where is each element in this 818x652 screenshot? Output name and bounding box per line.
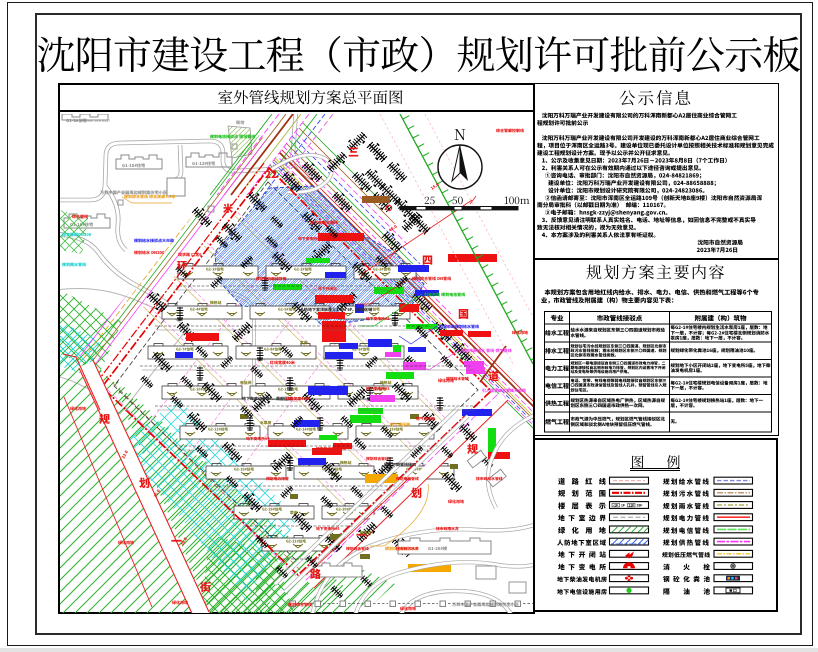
svg-text:燃气调压箱: 燃气调压箱 [390,422,410,428]
svg-text:规划电信管线: 规划电信管线 [396,476,419,482]
svg-text:街坊: 街坊 [236,120,245,126]
svg-text:规划市政排水 管线-燃气管线: 规划市政排水 管线-燃气管线 [461,348,512,354]
svg-text:综合管线DN300: 综合管线DN300 [62,232,92,238]
svg-text:路: 路 [310,566,321,582]
svg-text:G2-4#住宅: G2-4#住宅 [190,307,208,313]
svg-text:绿化用地: 绿化用地 [118,540,134,546]
svg-text:国: 国 [458,306,469,322]
svg-text:人防地下室顶板覆土1.5m 6F、局部区域: 人防地下室顶板覆土1.5m 6F、局部区域 [300,307,372,313]
svg-text:地下变电所#2: 地下变电所#2 [366,316,390,322]
svg-text:G2-2#住宅: G2-2#住宅 [294,267,312,273]
svg-text:街: 街 [200,579,211,595]
svg-text:G1-12#住宅: G1-12#住宅 [192,161,216,167]
svg-text:G2-3#住宅: G2-3#住宅 [373,267,391,273]
svg-text:水泵房: 水泵房 [260,420,272,426]
svg-text:红线宽度40米: 红线宽度40米 [270,360,295,366]
svg-text:地下柴油发电机房: 地下柴油发电机房 [557,575,607,584]
svg-text:0: 0 [395,192,401,207]
svg-text:规划低压燃气管线: 规划低压燃气管线 [662,550,710,559]
svg-text:泵房: 泵房 [290,510,298,516]
svg-text:25: 25 [424,192,436,207]
svg-text:四: 四 [422,252,433,268]
svg-text:规: 规 [99,411,110,427]
svg-text:引自市政 规划电信管线: 引自市政 规划电信管线 [424,292,465,298]
svg-text:N: N [454,124,466,145]
svg-text:18F: 18F [637,504,643,508]
svg-text:11F: 11F [629,504,635,508]
svg-text:G2-1#住宅: G2-1#住宅 [206,267,224,273]
svg-text:G1-10#住宅: G1-10#住宅 [122,163,146,169]
svg-text:规划电力管线: 规划电力管线 [663,513,709,523]
svg-text:规划雨水管线: 规划雨水管线 [663,500,709,510]
svg-text:G2-19#住宅: G2-19#住宅 [262,507,282,513]
svg-text:引自市政规划给水管线: 引自市政规划给水管线 [439,324,479,330]
svg-text:规划综合管线 综合走廊7.5米: 规划综合管线 综合走廊7.5米 [124,194,175,200]
svg-text:22: 22 [265,166,277,181]
svg-text:现状路 口宽6: 现状路 口宽6 [178,252,202,258]
svg-text:绿 化 用 地: 绿 化 用 地 [558,526,607,536]
svg-text:三: 三 [348,144,359,160]
svg-text:规划综合管线: 规划综合管线 [346,546,369,552]
svg-text:换热站: 换热站 [210,300,222,306]
svg-text:G2-8#住宅: G2-8#住宅 [264,347,282,353]
svg-text:现状一期管线接口: 现状一期管线接口 [384,462,416,468]
svg-text:万科中国产业园周边规划路住宅小区: 万科中国产业园周边规划路住宅小区 [452,602,520,608]
svg-text:地下电信设施用房: 地下电信设施用房 [557,587,607,596]
svg-text:隔 油 池: 隔 油 池 [663,586,710,596]
svg-text:接市政雨水井: 接市政雨水井 [436,526,459,532]
svg-text:G1-1#住宅: G1-1#住宅 [66,118,88,124]
svg-text:绿化用地: 绿化用地 [172,600,188,606]
svg-text:换热站: 换热站 [360,530,372,536]
svg-text:划: 划 [139,475,150,491]
svg-text:地下变电所#4: 地下变电所#4 [246,436,270,442]
svg-text:G2-5#住宅: G2-5#住宅 [278,307,296,313]
svg-text:绿化用地: 绿化用地 [400,606,416,612]
svg-text:G2-11#住宅: G2-11#住宅 [278,387,298,393]
svg-text:规划综合管线 DN管线: 规划综合管线 DN管线 [412,276,451,282]
svg-text:楼 层 表 示: 楼 层 表 示 [558,501,606,511]
svg-text:规划电力管线排管: 规划电力管线排管 [256,276,287,282]
svg-text:换热站: 换热站 [380,380,392,386]
svg-text:规划综合管线: 规划综合管线 [366,456,389,462]
svg-text:环: 环 [177,257,187,272]
svg-text:G2-7#住宅: G2-7#住宅 [176,347,194,353]
svg-text:地下柴油发电机房: 地下柴油发电机房 [316,446,347,452]
svg-text:道: 道 [488,368,499,384]
svg-text:换热站: 换热站 [340,460,352,466]
svg-text:规划电力排管: 规划电力排管 [266,476,289,482]
svg-text:地 下 开 闭 站: 地 下 开 闭 站 [558,549,606,559]
svg-text:地下变电所#5: 地下变电所#5 [316,526,340,532]
svg-text:绿化用地: 绿化用地 [512,330,528,336]
svg-text:综合管廊控制线: 综合管廊控制线 [496,128,524,134]
svg-text:绿化用地: 绿化用地 [448,499,464,505]
svg-text:电信间: 电信间 [240,380,252,386]
svg-text:规划雨水管线: 规划雨水管线 [62,262,86,268]
svg-text:25.0: 25.0 [152,488,162,499]
svg-text:G2-21#住宅: G2-21#住宅 [286,539,306,545]
svg-text:燃气调压箱: 燃气调压箱 [416,416,435,422]
svg-text:G2-16#住宅: G2-16#住宅 [234,467,254,473]
svg-text:道 路 红 线: 道 路 红 线 [558,477,607,487]
svg-text:地 下 变 电 所: 地 下 变 电 所 [558,561,606,571]
svg-text:规划给水管线: 规划给水管线 [663,476,709,486]
svg-text:G2-13#住宅: G2-13#住宅 [208,427,228,433]
svg-text:规划综合管线: 规划综合管线 [288,602,312,608]
svg-text:地下变电所#3: 地下变电所#3 [366,386,390,392]
svg-text:地下车库边界 6F、局部区域: 地下车库边界 6F、局部区域 [242,396,292,402]
svg-text:地下变电所#1: 地下变电所#1 [298,236,322,242]
svg-text:G2-14#住宅: G2-14#住宅 [296,427,316,433]
svg-text:消 火 栓: 消 火 栓 [663,561,710,571]
svg-text:钢 砼 化 粪 池: 钢 砼 化 粪 池 [663,574,710,584]
svg-text:引入现状综合管线大市政: 引入现状综合管线大市政 [482,388,526,394]
svg-text:规划给水管线: 规划给水管线 [446,376,469,382]
svg-text:规: 规 [467,441,478,457]
svg-text:绿化用地: 绿化用地 [70,406,86,412]
svg-text:地下车库范围线: 地下车库范围线 [310,220,338,226]
svg-text:地下开闭站: 地下开闭站 [318,286,337,292]
svg-text:-1F: -1F [613,504,618,508]
svg-text:划: 划 [411,485,422,501]
svg-text:规划污水管线: 规划污水管线 [663,488,709,498]
svg-text:G1-20#楼: G1-20#楼 [428,546,448,552]
svg-text:规划电信管线: 规划电信管线 [663,525,709,535]
svg-text:米: 米 [223,200,233,215]
svg-text:100m: 100m [504,192,530,207]
svg-text:1F: 1F [621,504,625,508]
svg-text:规划给水接驳点大市政: 规划给水接驳点大市政 [134,238,174,244]
svg-text:50: 50 [452,192,464,207]
svg-text:规划供热管线: 规划供热管线 [663,537,709,547]
svg-text:地 下 室 边 界: 地 下 室 边 界 [558,513,606,523]
svg-text:泵房: 泵房 [300,340,308,346]
svg-text:人防地下室区域: 人防地下室区域 [557,538,607,547]
svg-text:规划给水 DN200: 规划给水 DN200 [134,250,165,256]
svg-text:40.0: 40.0 [388,223,399,233]
svg-text:综合管线: 综合管线 [72,214,88,220]
svg-text:接市政污水井: 接市政污水井 [396,546,419,552]
svg-text:规划电信接驳点 现况管线: 规划电信接驳点 现况管线 [210,134,255,140]
svg-text:红线宽度40米: 红线宽度40米 [286,396,310,402]
svg-text:接市政给水管线: 接市政给水管线 [476,476,503,482]
svg-text:规 划 范 围: 规 划 范 围 [558,489,606,499]
